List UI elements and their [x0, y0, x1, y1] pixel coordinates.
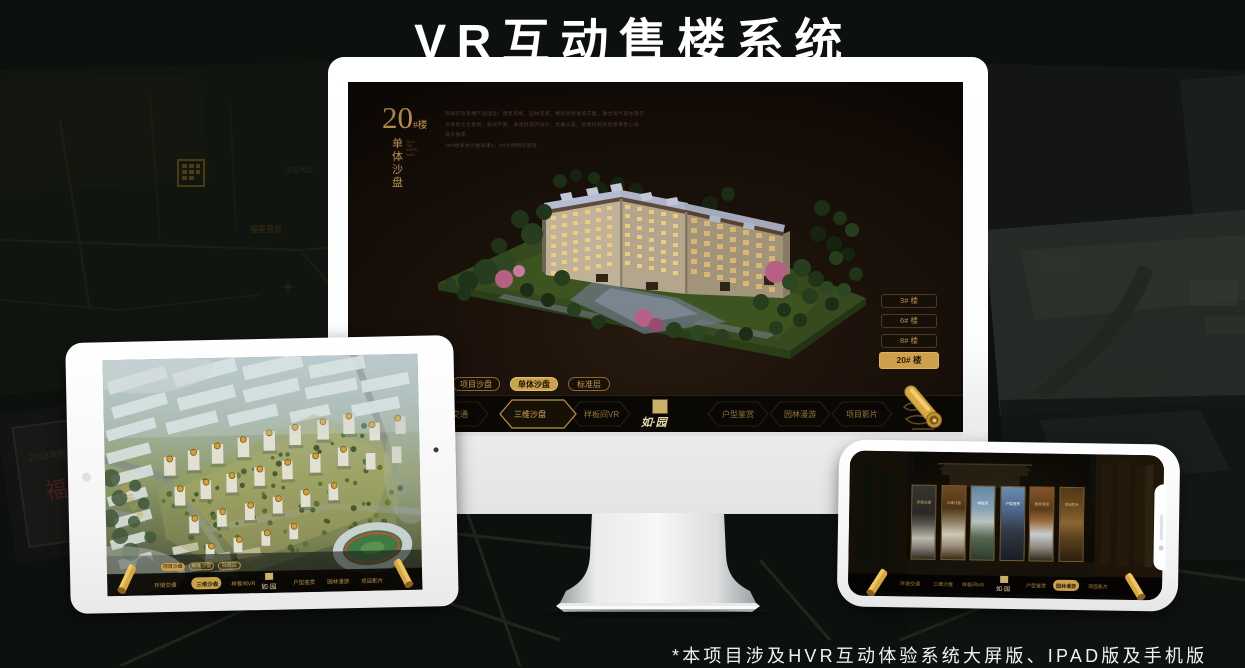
svg-text:中国海淀: 中国海淀	[285, 165, 313, 174]
svg-text:福星惠誉: 福星惠誉	[250, 224, 282, 234]
